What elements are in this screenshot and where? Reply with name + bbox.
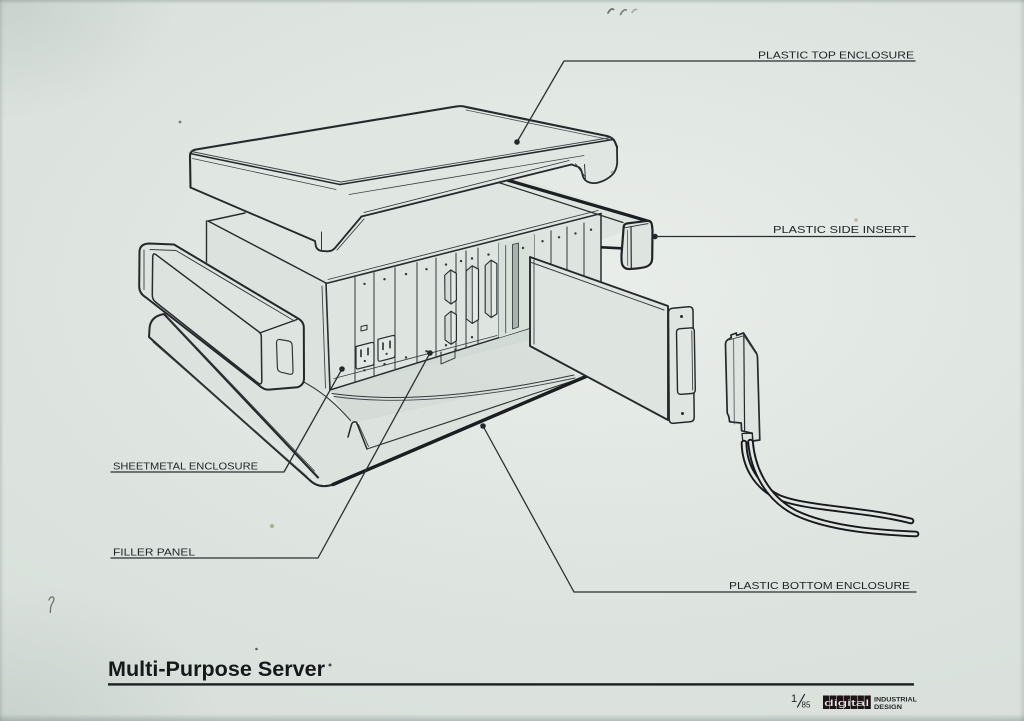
svg-text:digital: digital: [824, 698, 869, 708]
svg-text:Multi-Purpose Server: Multi-Purpose Server: [108, 657, 326, 681]
svg-text:PLASTIC TOP ENCLOSURE: PLASTIC TOP ENCLOSURE: [758, 51, 914, 62]
svg-text:FILLER PANEL: FILLER PANEL: [113, 548, 195, 559]
svg-text:PLASTIC SIDE INSERT: PLASTIC SIDE INSERT: [773, 225, 909, 236]
svg-text:DESIGN: DESIGN: [874, 704, 902, 711]
svg-text:SHEETMETAL ENCLOSURE: SHEETMETAL ENCLOSURE: [113, 462, 258, 473]
svg-text:1: 1: [791, 693, 797, 705]
svg-text:PLASTIC BOTTOM ENCLOSURE: PLASTIC BOTTOM ENCLOSURE: [729, 581, 910, 592]
svg-text:85: 85: [802, 701, 811, 710]
svg-text:INDUSTRIAL: INDUSTRIAL: [874, 697, 917, 704]
